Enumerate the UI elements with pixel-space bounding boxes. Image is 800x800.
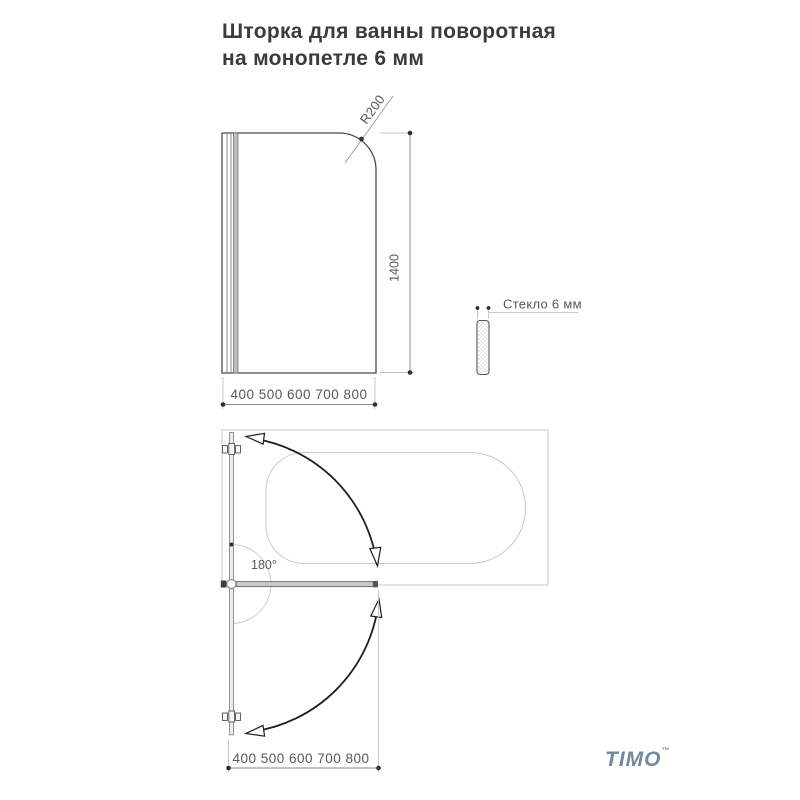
- swing-arc-upper: [250, 438, 377, 565]
- front-view: R200 1400 400 500 600 700 800: [221, 92, 414, 409]
- dimension-end-dot: [408, 131, 413, 136]
- pivot-hinge: [227, 579, 236, 588]
- arc-end-dot: [230, 543, 234, 547]
- glass-section-bar: [477, 321, 489, 375]
- arrowhead: [246, 725, 265, 736]
- technical-drawing: R200 1400 400 500 600 700 800 Стекло 6: [0, 0, 800, 800]
- drawing-sheet: Шторка для ванны поворотная на монопетле…: [0, 0, 800, 800]
- arrowhead: [246, 433, 265, 444]
- swing-angle-label: 180°: [251, 558, 277, 572]
- radius-point: [359, 137, 364, 142]
- front-view-glass-outline: [222, 133, 376, 373]
- dimension-end-dot: [476, 306, 480, 310]
- brand-logo: TIMO™: [605, 748, 685, 792]
- hinge-bracket-top: [223, 444, 241, 455]
- width-dimension-label: 400 500 600 700 800: [230, 387, 367, 402]
- screen-end-cap: [373, 581, 378, 587]
- dimension-end-dot: [376, 766, 381, 771]
- brand-logo-text: TIMO: [605, 748, 662, 771]
- glass-thickness-label: Стекло 6 мм: [503, 297, 582, 312]
- swing-arc-lower: [250, 603, 378, 732]
- dimension-end-dot: [221, 402, 226, 407]
- trademark-symbol: ™: [662, 746, 670, 755]
- top-view-width-label: 400 500 600 700 800: [232, 751, 369, 766]
- dimension-end-dot: [487, 306, 491, 310]
- hinge-bracket-bottom: [223, 711, 241, 722]
- arrowhead: [371, 599, 382, 618]
- glass-section-view: Стекло 6 мм: [476, 297, 582, 375]
- top-view: 180°: [221, 430, 548, 772]
- dimension-end-dot: [373, 402, 378, 407]
- hinge-profile-band: [234, 133, 239, 373]
- tub-shape: [266, 453, 526, 564]
- height-dimension-label: 1400: [388, 254, 402, 282]
- screen-closed: [236, 582, 374, 587]
- dimension-end-dot: [226, 766, 231, 771]
- dimension-end-dot: [408, 370, 413, 375]
- wall-anchor: [221, 581, 227, 588]
